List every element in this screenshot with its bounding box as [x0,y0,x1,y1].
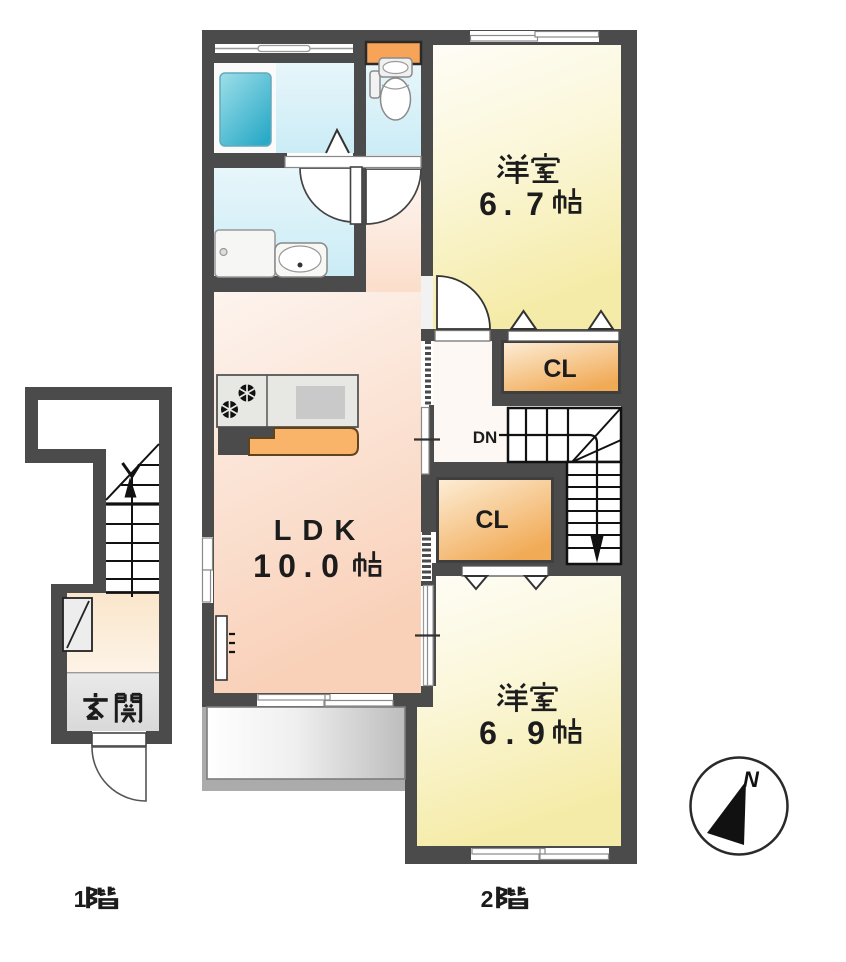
svg-text:N: N [743,767,760,792]
svg-text:CL: CL [475,506,508,534]
svg-text:.: . [304,548,313,584]
svg-text:2: 2 [481,886,494,912]
svg-text:6: 6 [479,186,497,222]
svg-text:9: 9 [527,715,545,751]
svg-text:LDK: LDK [274,515,367,547]
svg-text:1: 1 [74,886,87,912]
svg-text:.: . [504,186,513,222]
svg-text:1: 1 [253,548,271,584]
svg-text:.: . [506,715,515,751]
svg-text:DN: DN [473,428,498,447]
svg-text:0: 0 [321,548,339,584]
svg-text:0: 0 [278,548,296,584]
svg-text:7: 7 [526,186,544,222]
svg-text:6: 6 [479,715,497,751]
svg-text:CL: CL [543,355,576,383]
